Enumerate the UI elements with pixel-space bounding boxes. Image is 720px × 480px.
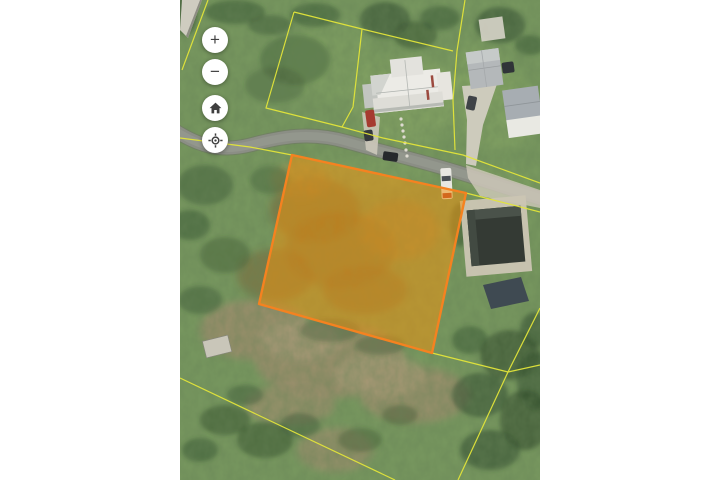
home-icon [209,102,222,114]
left-gutter [0,0,180,480]
locate-icon [208,133,223,148]
garage-building [466,48,504,89]
right-house [502,86,540,139]
locate-button[interactable] [202,127,228,153]
dark-car-right [501,61,514,74]
app-window: + − [0,0,720,480]
right-gutter [540,0,720,480]
map-viewport[interactable]: + − [180,0,540,480]
plus-icon: + [210,31,220,48]
map-controls: + − [202,27,228,153]
zoom-in-button[interactable]: + [202,27,228,53]
satellite-imagery [180,0,540,480]
home-button[interactable] [202,95,228,121]
minus-icon: − [210,63,220,80]
dark-building [467,206,526,266]
zoom-out-button[interactable]: − [202,59,228,85]
